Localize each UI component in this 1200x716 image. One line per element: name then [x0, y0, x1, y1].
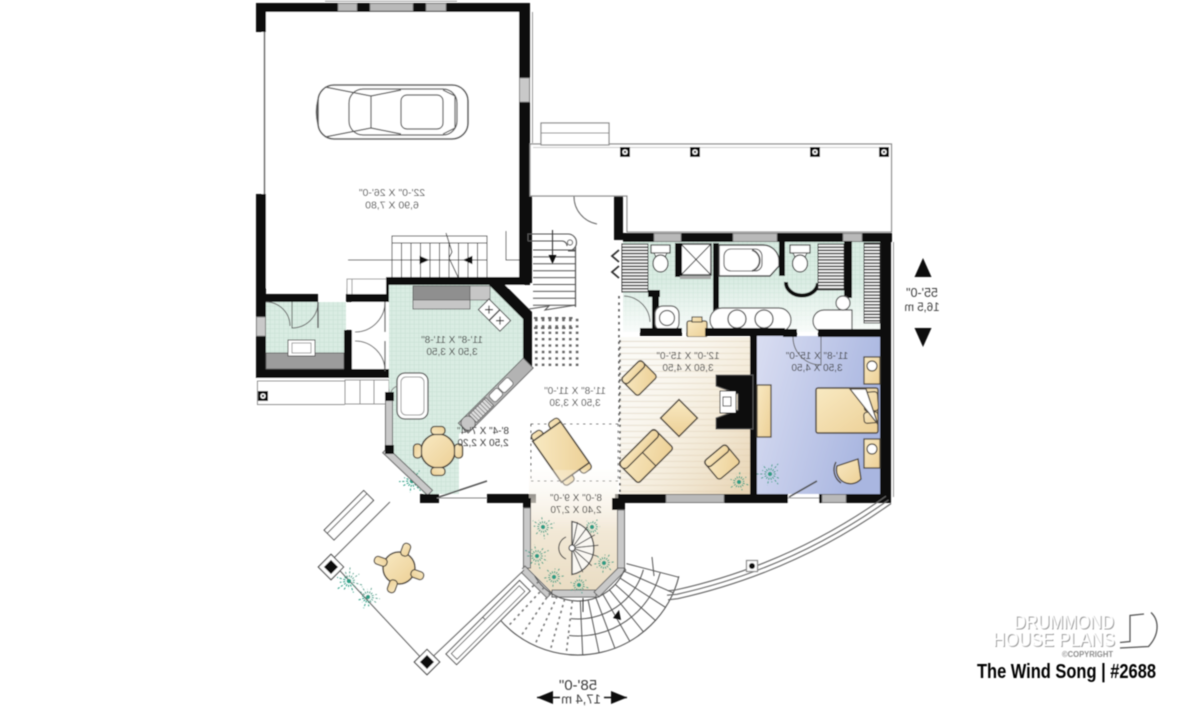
svg-text:The Wind Song | #2688: The Wind Song | #2688	[977, 660, 1156, 683]
svg-text:3,50 X 3,50: 3,50 X 3,50	[426, 347, 478, 358]
svg-text:8'-0" X 9'-0": 8'-0" X 9'-0"	[550, 493, 603, 504]
svg-text:12'-0" X 15'-0": 12'-0" X 15'-0"	[656, 351, 720, 362]
svg-text:©COPYRIGHT: ©COPYRIGHT	[1062, 650, 1113, 659]
svg-text:8'-4" X 7'-4": 8'-4" X 7'-4"	[457, 426, 510, 437]
svg-text:22'-0" X 26'-0": 22'-0" X 26'-0"	[359, 187, 426, 199]
svg-text:11'-8" X 11'-8": 11'-8" X 11'-8"	[421, 335, 483, 346]
svg-text:2,40 X 2,70: 2,40 X 2,70	[550, 505, 602, 516]
svg-text:HOUSE PLANS: HOUSE PLANS	[993, 629, 1115, 651]
svg-text:3,50 X 3,30: 3,50 X 3,30	[549, 398, 601, 409]
svg-text:16,5 m: 16,5 m	[904, 302, 939, 314]
svg-text:55'-0": 55'-0"	[906, 286, 938, 300]
svg-text:11'-8" X 11'-0": 11'-8" X 11'-0"	[544, 386, 606, 397]
svg-text:11'-8" X 15'-0": 11'-8" X 15'-0"	[785, 351, 848, 362]
svg-text:2,50 X 2,20: 2,50 X 2,20	[457, 438, 509, 449]
svg-text:3,60 X 4,50: 3,60 X 4,50	[662, 363, 714, 374]
svg-text:17,4 m: 17,4 m	[561, 692, 601, 707]
svg-text:6,90 X 7,80: 6,90 X 7,80	[365, 200, 419, 212]
